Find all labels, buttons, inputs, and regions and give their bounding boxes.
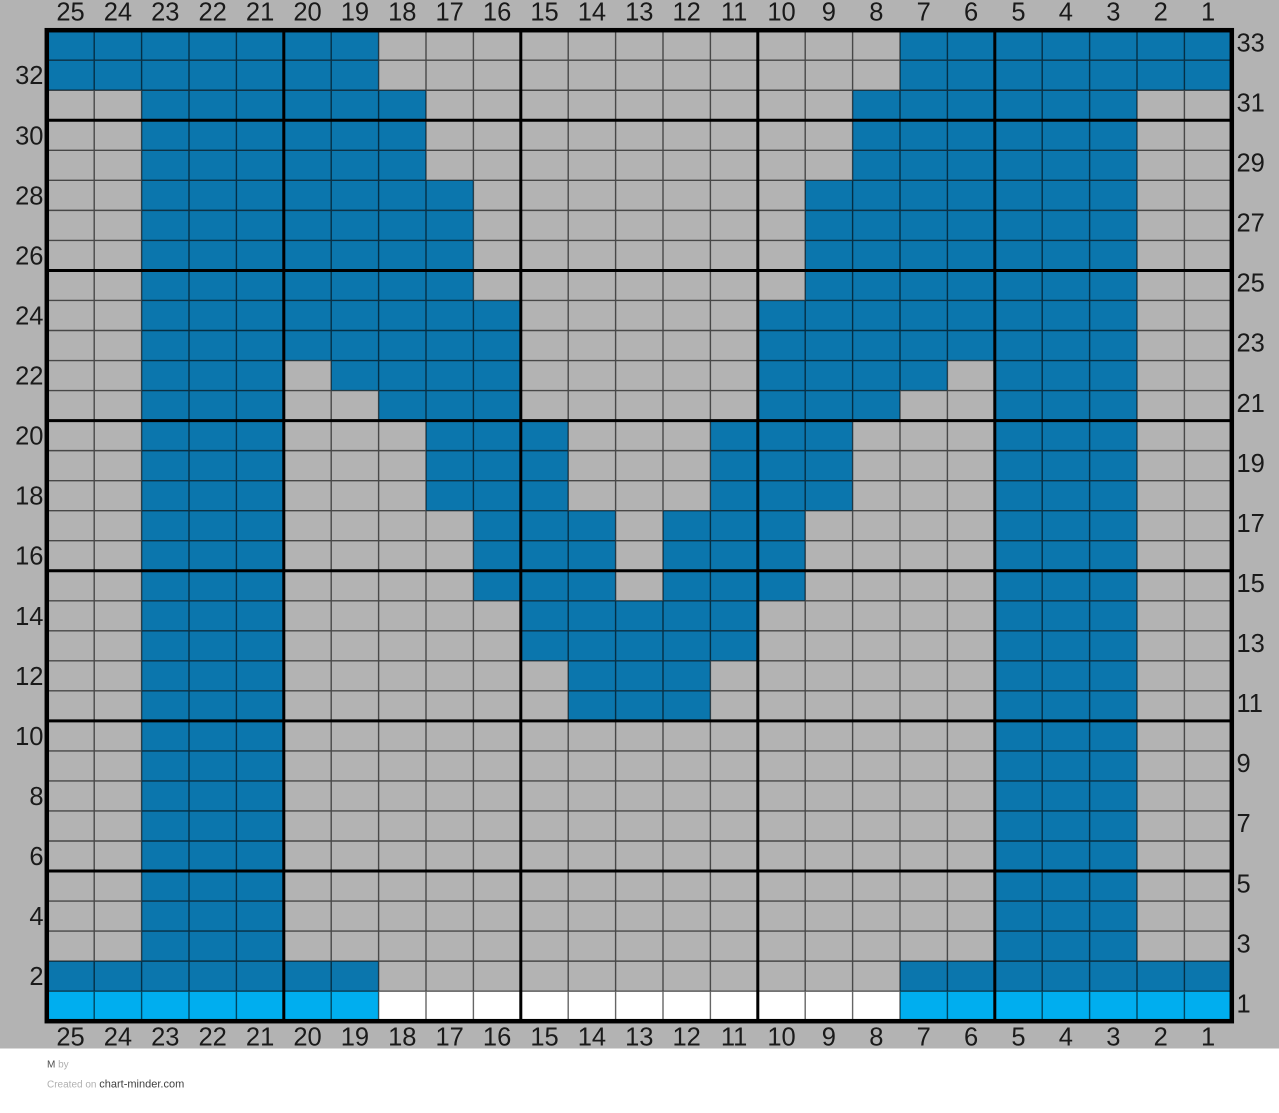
svg-text:24: 24 — [104, 0, 132, 27]
svg-text:4: 4 — [1059, 0, 1073, 27]
svg-text:20: 20 — [15, 423, 43, 451]
svg-text:9: 9 — [1237, 750, 1251, 778]
svg-text:9: 9 — [822, 0, 836, 27]
svg-text:21: 21 — [246, 1024, 274, 1052]
svg-text:13: 13 — [625, 1024, 653, 1052]
svg-text:32: 32 — [15, 62, 43, 90]
svg-text:6: 6 — [29, 843, 43, 871]
svg-text:19: 19 — [1237, 450, 1265, 478]
svg-text:7: 7 — [1237, 810, 1251, 838]
svg-text:7: 7 — [917, 0, 931, 27]
svg-text:19: 19 — [341, 1024, 369, 1052]
svg-text:29: 29 — [1237, 150, 1265, 178]
svg-text:25: 25 — [1237, 270, 1265, 298]
svg-text:25: 25 — [56, 0, 84, 27]
svg-text:11: 11 — [1237, 690, 1263, 718]
svg-text:13: 13 — [1237, 630, 1265, 658]
svg-text:7: 7 — [917, 1024, 931, 1052]
svg-text:14: 14 — [578, 1024, 606, 1052]
svg-text:2: 2 — [1154, 1024, 1168, 1052]
svg-text:18: 18 — [388, 0, 416, 27]
svg-text:15: 15 — [530, 0, 558, 27]
svg-text:12: 12 — [673, 0, 701, 27]
svg-text:27: 27 — [1237, 210, 1265, 238]
svg-text:8: 8 — [869, 0, 883, 27]
svg-text:18: 18 — [388, 1024, 416, 1052]
svg-text:3: 3 — [1106, 0, 1120, 27]
svg-text:14: 14 — [578, 0, 606, 27]
svg-text:31: 31 — [1237, 90, 1265, 118]
svg-text:4: 4 — [29, 903, 43, 931]
svg-text:22: 22 — [199, 0, 227, 27]
svg-text:5: 5 — [1011, 1024, 1025, 1052]
svg-text:11: 11 — [721, 1024, 747, 1052]
svg-text:23: 23 — [151, 1024, 179, 1052]
svg-text:9: 9 — [822, 1024, 836, 1052]
svg-text:M by: M by — [47, 1060, 69, 1071]
svg-text:4: 4 — [1059, 1024, 1073, 1052]
svg-text:17: 17 — [436, 0, 464, 27]
svg-text:16: 16 — [15, 543, 43, 571]
svg-text:10: 10 — [15, 723, 43, 751]
svg-text:25: 25 — [56, 1024, 84, 1052]
svg-text:5: 5 — [1237, 870, 1251, 898]
svg-text:21: 21 — [246, 0, 274, 27]
svg-text:26: 26 — [15, 242, 43, 270]
svg-text:22: 22 — [15, 363, 43, 391]
svg-text:33: 33 — [1237, 29, 1265, 57]
svg-text:1: 1 — [1201, 1024, 1215, 1052]
svg-text:10: 10 — [767, 0, 795, 27]
svg-text:1: 1 — [1201, 0, 1215, 27]
svg-text:23: 23 — [1237, 330, 1265, 358]
svg-text:11: 11 — [721, 0, 747, 27]
svg-text:2: 2 — [1154, 0, 1168, 27]
svg-text:3: 3 — [1237, 930, 1251, 958]
svg-text:8: 8 — [29, 783, 43, 811]
svg-text:8: 8 — [869, 1024, 883, 1052]
svg-text:18: 18 — [15, 483, 43, 511]
svg-text:3: 3 — [1106, 1024, 1120, 1052]
svg-text:15: 15 — [530, 1024, 558, 1052]
svg-text:10: 10 — [767, 1024, 795, 1052]
svg-text:20: 20 — [293, 0, 321, 27]
svg-text:16: 16 — [483, 0, 511, 27]
svg-text:13: 13 — [625, 0, 653, 27]
svg-text:24: 24 — [104, 1024, 132, 1052]
svg-text:16: 16 — [483, 1024, 511, 1052]
svg-text:12: 12 — [15, 663, 43, 691]
svg-text:2: 2 — [29, 963, 43, 991]
svg-text:24: 24 — [15, 303, 43, 331]
svg-text:19: 19 — [341, 0, 369, 27]
svg-text:22: 22 — [199, 1024, 227, 1052]
svg-text:28: 28 — [15, 182, 43, 210]
svg-text:14: 14 — [15, 603, 43, 631]
svg-text:6: 6 — [964, 1024, 978, 1052]
svg-text:21: 21 — [1237, 390, 1265, 418]
svg-text:5: 5 — [1011, 0, 1025, 27]
svg-text:12: 12 — [673, 1024, 701, 1052]
svg-text:20: 20 — [293, 1024, 321, 1052]
svg-text:30: 30 — [15, 122, 43, 150]
svg-text:15: 15 — [1237, 570, 1265, 598]
svg-text:17: 17 — [1237, 510, 1265, 538]
svg-text:23: 23 — [151, 0, 179, 27]
svg-text:6: 6 — [964, 0, 978, 27]
svg-text:17: 17 — [436, 1024, 464, 1052]
svg-text:Created on chart-minder.com: Created on chart-minder.com — [47, 1079, 184, 1091]
svg-text:1: 1 — [1237, 990, 1251, 1018]
